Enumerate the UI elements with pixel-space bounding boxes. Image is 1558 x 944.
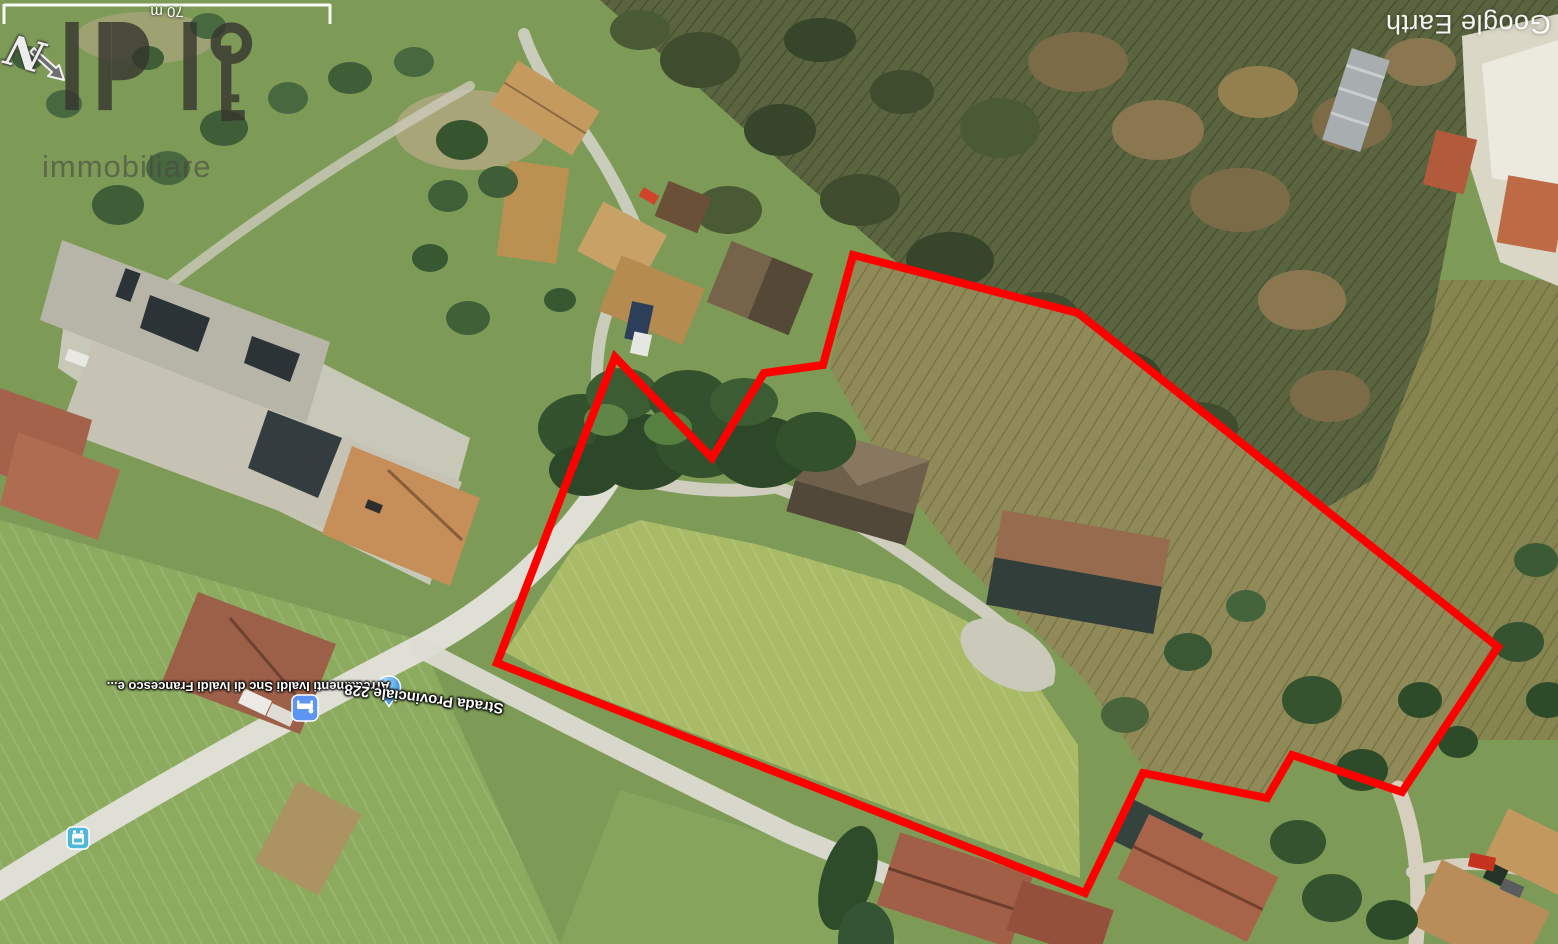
bus-stop-icon[interactable] [67, 827, 89, 849]
google-earth-map-view[interactable]: 70 m N immobiliare Google Earth Arredame… [0, 0, 1558, 944]
ipi-immobiliare-logo: immobiliare [40, 22, 280, 185]
google-earth-watermark: Google Earth [1380, 8, 1556, 39]
property-boundary-outline [497, 255, 1498, 893]
ipi-logo-glyphs [40, 22, 278, 140]
furniture-poi-icon[interactable] [292, 695, 318, 721]
ipi-logo-subtitle: immobiliare [42, 149, 280, 185]
scale-bar-label: 70 m [130, 3, 204, 20]
